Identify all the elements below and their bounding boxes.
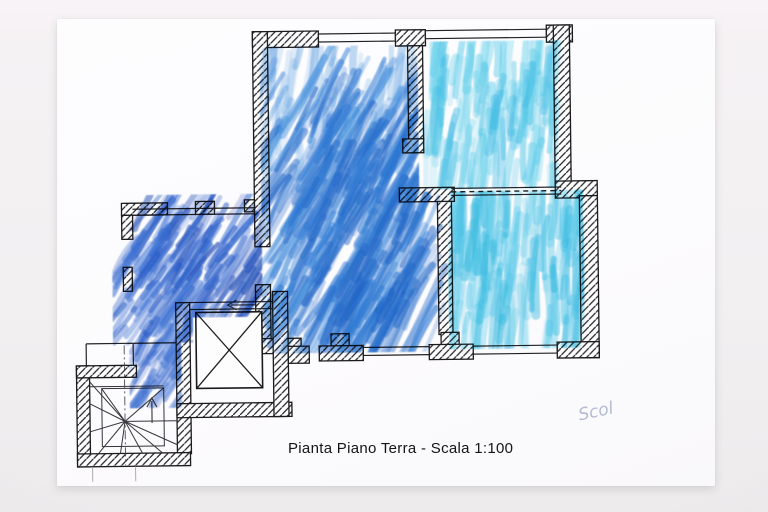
signature: Scol <box>577 398 616 425</box>
paper-sheet: Pianta Piano Terra - Scala 1:100 Scol <box>57 19 715 486</box>
floor-plan-drawing: Pianta Piano Terra - Scala 1:100 Scol <box>57 19 715 486</box>
crayon-region-upper-right-room <box>423 19 560 219</box>
crayon-shading <box>98 19 589 424</box>
elevator-shaft <box>196 312 263 389</box>
photo-background: Pianta Piano Terra - Scala 1:100 Scol <box>0 0 768 512</box>
plan-title: Pianta Piano Terra - Scala 1:100 <box>288 440 513 457</box>
